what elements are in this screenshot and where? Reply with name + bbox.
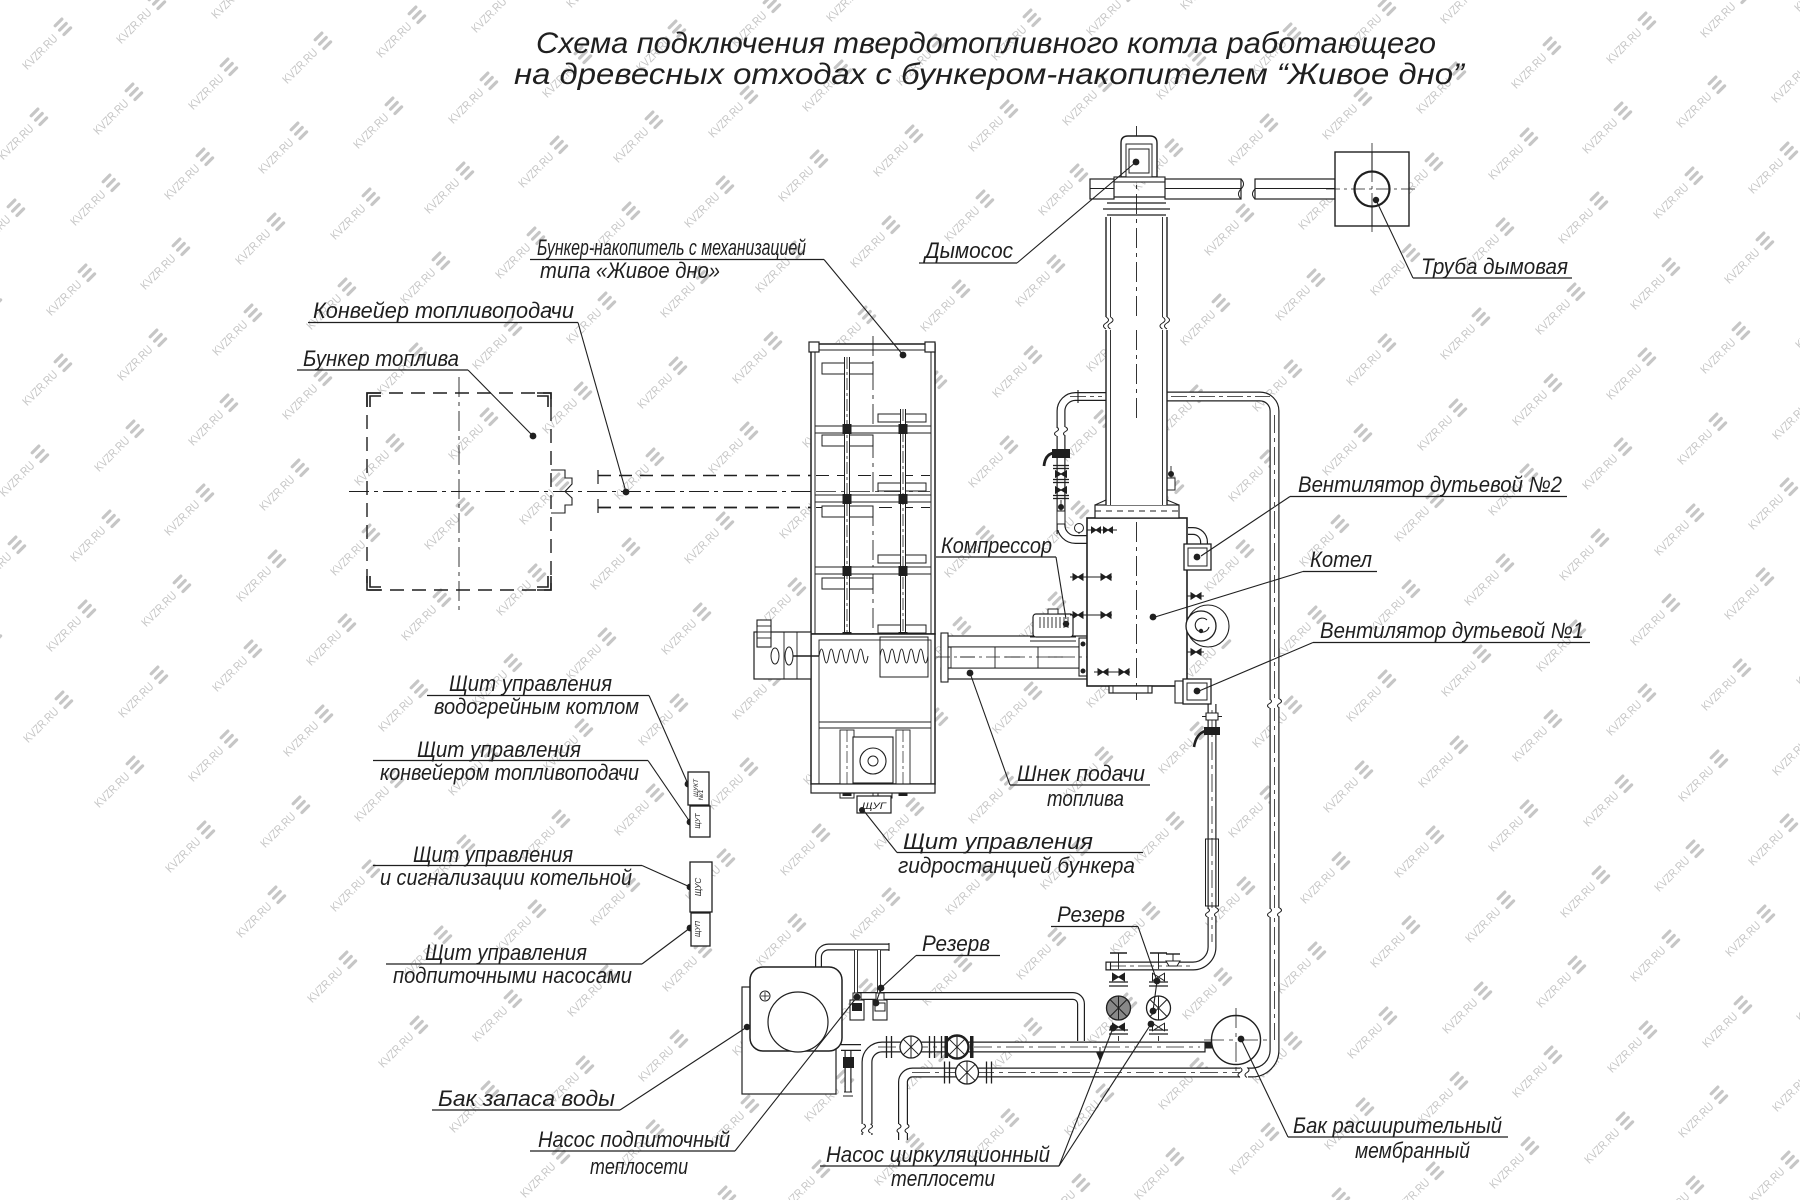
svg-text:Бак расширительный: Бак расширительный [1293,1113,1502,1138]
svg-text:топлива: топлива [1047,786,1124,811]
svg-text:Шнек подачи: Шнек подачи [1017,761,1145,786]
svg-text:и сигнализации котельной: и сигнализации котельной [380,865,632,890]
svg-text:Конвейер топливоподачи: Конвейер топливоподачи [313,298,574,323]
svg-text:Щит управления: Щит управления [413,842,573,867]
svg-text:Схема подключения твердотоплив: Схема подключения твердотопливного котла… [536,27,1436,60]
svg-text:ЩУП: ЩУП [695,920,702,937]
svg-text:гидростанцией бункера: гидростанцией бункера [898,853,1135,878]
svg-text:конвейером топливоподачи: конвейером топливоподачи [380,760,639,785]
svg-text:теплосети: теплосети [891,1166,995,1191]
svg-text:№1: №1 [698,789,705,800]
svg-text:Компрессор: Компрессор [941,533,1052,558]
svg-text:теплосети: теплосети [590,1154,688,1179]
svg-text:ЩУС: ЩУС [694,878,703,896]
svg-text:Вентилятор дутьевой №2: Вентилятор дутьевой №2 [1298,472,1562,497]
svg-text:Резерв: Резерв [922,931,990,956]
svg-text:Дымосос: Дымосос [922,238,1013,263]
svg-text:типа «Живое дно»: типа «Живое дно» [540,258,720,283]
svg-text:водогрейным котлом: водогрейным котлом [434,694,639,719]
svg-text:мембранный: мембранный [1355,1138,1470,1163]
svg-text:ЩУГ: ЩУГ [862,801,887,811]
svg-text:Щит управления: Щит управления [449,671,612,696]
svg-text:Щит управления: Щит управления [425,940,587,965]
svg-text:ЩУТ: ЩУТ [695,813,702,829]
svg-text:Щит управления: Щит управления [417,737,581,762]
svg-text:Бак запаса воды: Бак запаса воды [438,1086,615,1111]
svg-text:Насос подпиточный: Насос подпиточный [538,1127,730,1152]
svg-text:Резерв: Резерв [1057,902,1125,927]
svg-text:Котел: Котел [1310,547,1372,572]
svg-text:Щит управления: Щит управления [903,829,1093,854]
svg-text:Насос циркуляционный: Насос циркуляционный [826,1142,1050,1167]
svg-text:на древесных отходах с бункеро: на древесных отходах с бункером-накопите… [514,58,1466,91]
svg-text:Бункер топлива: Бункер топлива [303,346,459,371]
svg-text:подпиточными насосами: подпиточными насосами [393,963,632,988]
svg-text:Труба дымовая: Труба дымовая [1421,254,1568,279]
svg-text:Вентилятор дутьевой №1: Вентилятор дутьевой №1 [1320,618,1584,643]
svg-text:Бункер-накопитель с механизаци: Бункер-накопитель с механизацией [537,235,806,260]
